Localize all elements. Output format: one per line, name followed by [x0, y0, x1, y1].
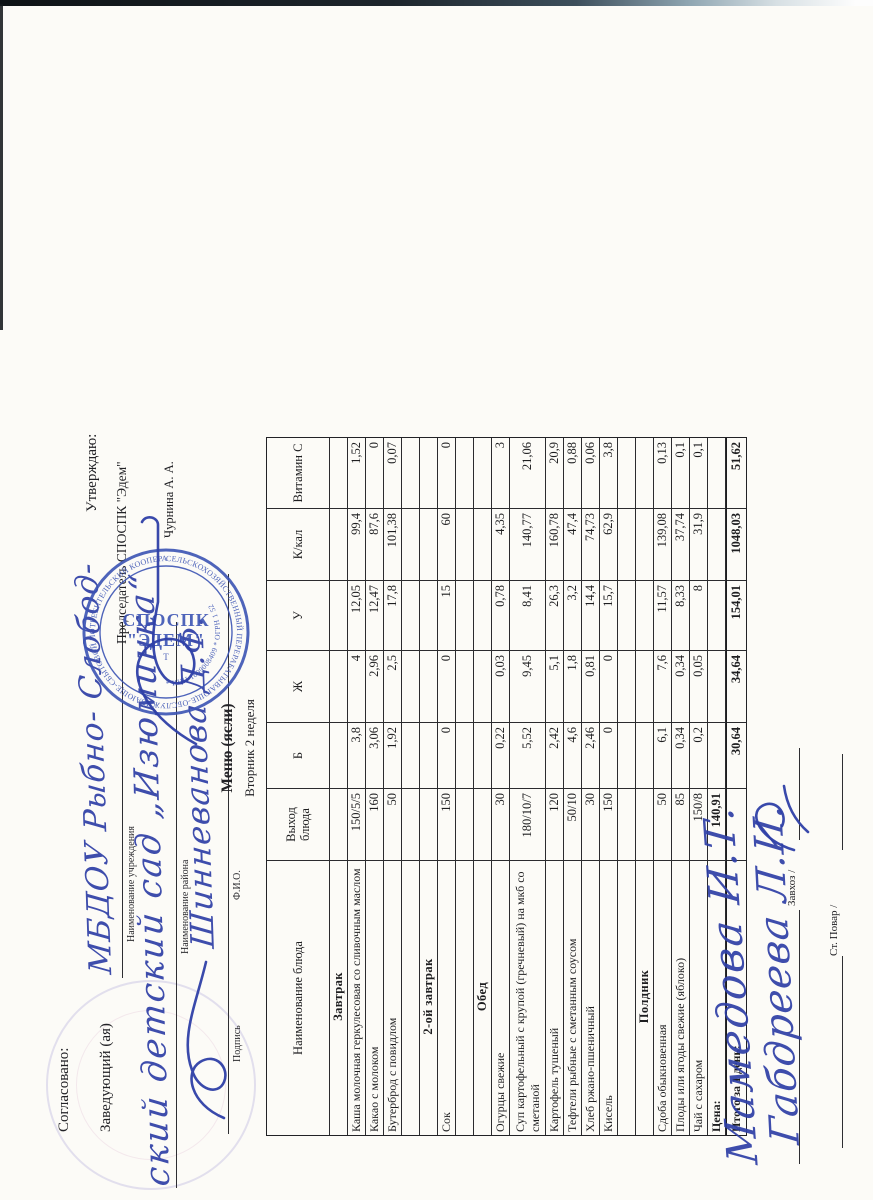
value-cell: 0: [438, 438, 455, 508]
value-cell: [330, 650, 347, 722]
table-row: Полдник: [636, 438, 654, 1135]
value-cell: [474, 650, 491, 722]
value-cell: 8: [690, 580, 707, 650]
value-cell: 0,2: [690, 722, 707, 788]
value-cell: 1,8: [564, 650, 581, 722]
menu-title: Меню (ясли): [219, 648, 237, 848]
head-role-label: Заведующий (ая): [98, 1023, 115, 1132]
header-dish-name: Наименование блюда: [267, 860, 329, 1135]
value-cell: 0: [438, 722, 455, 788]
approved-title: Утверждаю:: [84, 434, 101, 512]
value-cell: 150: [438, 788, 455, 860]
value-cell: 34,64: [727, 650, 746, 722]
dish-name-cell: Тефтели рыбные с сметанным соусом: [564, 860, 581, 1135]
value-cell: 150/5/5: [348, 788, 365, 860]
value-cell: [456, 508, 473, 580]
value-cell: 0: [600, 650, 617, 722]
value-cell: 5,1: [546, 650, 563, 722]
table-row: Какао с молоком1603,062,9612,4787,60: [366, 438, 384, 1135]
value-cell: [402, 438, 419, 508]
value-cell: 20,9: [546, 438, 563, 508]
dish-name-cell: 2-ой завтрак: [420, 860, 437, 1135]
value-cell: 17,8: [384, 580, 401, 650]
dish-name-cell: Обед: [474, 860, 491, 1135]
dish-name-cell: [456, 860, 473, 1135]
value-cell: [474, 508, 491, 580]
value-cell: 11,57: [654, 580, 671, 650]
footer-signature-scribble: [742, 772, 812, 862]
value-cell: [708, 722, 725, 788]
value-cell: 62,9: [600, 508, 617, 580]
cook-label: Ст. Повар /: [828, 905, 840, 956]
value-cell: 51,62: [727, 438, 746, 508]
value-cell: 0,34: [672, 650, 689, 722]
dish-name-cell: Плоды или ягоды свежие (яблоко): [672, 860, 689, 1135]
value-cell: [330, 580, 347, 650]
value-cell: 3: [492, 438, 509, 508]
value-cell: 85: [672, 788, 689, 860]
dish-name-cell: Картофель тушеный: [546, 860, 563, 1135]
value-cell: 2,46: [582, 722, 599, 788]
table-row: Плоды или ягоды свежие (яблоко)850,340,3…: [672, 438, 690, 1135]
value-cell: 2,5: [384, 650, 401, 722]
value-cell: [474, 788, 491, 860]
value-cell: [420, 650, 437, 722]
landscape-sheet: Согласовано: Заведующий (ая) МБДОУ Рыбно…: [0, 0, 873, 1200]
header-protein: Б: [267, 722, 329, 788]
value-cell: 0,34: [672, 722, 689, 788]
dish-name-cell: Завтрак: [330, 860, 347, 1135]
value-cell: [456, 722, 473, 788]
value-cell: [636, 508, 653, 580]
scan-edge-artifact-top: [0, 0, 873, 6]
header-carbs: У: [267, 580, 329, 650]
table-row: Тефтели рыбные с сметанным соусом50/104,…: [564, 438, 582, 1135]
fio-label: Ф.И.О.: [232, 870, 243, 900]
value-cell: 140,77: [510, 508, 545, 580]
value-cell: [420, 438, 437, 508]
value-cell: 2,96: [366, 650, 383, 722]
value-cell: 150: [600, 788, 617, 860]
value-cell: 12,47: [366, 580, 383, 650]
value-cell: 2,42: [546, 722, 563, 788]
value-cell: [330, 438, 347, 508]
value-cell: 1048,03: [727, 508, 746, 580]
value-cell: 50/10: [564, 788, 581, 860]
value-cell: 0: [600, 722, 617, 788]
value-cell: [708, 508, 725, 580]
menu-subtitle: Вторник 2 неделя: [242, 648, 258, 848]
value-cell: [636, 438, 653, 508]
agreed-title: Согласовано:: [56, 1048, 73, 1132]
scan-edge-artifact-left: [0, 4, 3, 330]
value-cell: 3,8: [600, 438, 617, 508]
table-row: Сок1500015600: [438, 438, 456, 1135]
table-row: [618, 438, 636, 1135]
dish-name-cell: Полдник: [636, 860, 653, 1135]
table-row: [402, 438, 420, 1135]
value-cell: 1,92: [384, 722, 401, 788]
table-row: Завтрак: [330, 438, 348, 1135]
value-cell: 87,6: [366, 508, 383, 580]
value-cell: 7,6: [654, 650, 671, 722]
value-cell: 99,4: [348, 508, 365, 580]
scanned-menu-page: Согласовано: Заведующий (ая) МБДОУ Рыбно…: [0, 0, 873, 1200]
value-cell: [618, 788, 635, 860]
value-cell: [402, 650, 419, 722]
value-cell: 0,78: [492, 580, 509, 650]
value-cell: 101,38: [384, 508, 401, 580]
table-row: Огурцы свежие300,220,030,784,353: [492, 438, 510, 1135]
value-cell: [420, 508, 437, 580]
value-cell: [636, 650, 653, 722]
value-cell: 15: [438, 580, 455, 650]
value-cell: 74,73: [582, 508, 599, 580]
value-cell: 160,78: [546, 508, 563, 580]
value-cell: [456, 438, 473, 508]
value-cell: [330, 722, 347, 788]
menu-table: Наименование блюда Выход блюда Б Ж У К/к…: [266, 437, 747, 1136]
dish-name-cell: Сок: [438, 860, 455, 1135]
value-cell: 14,4: [582, 580, 599, 650]
table-row: Кисель1500015,762,93,8: [600, 438, 618, 1135]
value-cell: [402, 788, 419, 860]
value-cell: 0,06: [582, 438, 599, 508]
table-row: Сдоба обыкновенная506,17,611,57139,080,1…: [654, 438, 672, 1135]
value-cell: 30: [582, 788, 599, 860]
value-cell: [420, 788, 437, 860]
value-cell: [618, 722, 635, 788]
table-row: 2-ой завтрак: [420, 438, 438, 1135]
header-kcal: К/кал: [267, 508, 329, 580]
dish-name-cell: Хлеб ржано-пшеничный: [582, 860, 599, 1135]
value-cell: 30: [492, 788, 509, 860]
value-cell: 4,6: [564, 722, 581, 788]
value-cell: [708, 580, 725, 650]
value-cell: 0: [366, 438, 383, 508]
value-cell: [402, 508, 419, 580]
value-cell: 0,05: [690, 650, 707, 722]
table-row: Суп картофельный с крупой (гречневый) на…: [510, 438, 546, 1135]
menu-table-body: ЗавтракКаша молочная геркулесовая со сли…: [330, 438, 746, 1135]
dish-name-cell: Бутерброд с повидлом: [384, 860, 401, 1135]
value-cell: [708, 650, 725, 722]
value-cell: [618, 438, 635, 508]
value-cell: 180/10/7: [510, 788, 545, 860]
table-row: Картофель тушеный1202,425,126,3160,7820,…: [546, 438, 564, 1135]
header-vitamin-c: Витамин С: [267, 438, 329, 508]
value-cell: 3,2: [564, 580, 581, 650]
header-fat: Ж: [267, 650, 329, 722]
value-cell: 9,45: [510, 650, 545, 722]
table-row: Чай с сахаром150/80,20,05831,90,1: [690, 438, 708, 1135]
value-cell: 1,52: [348, 438, 365, 508]
value-cell: 12,05: [348, 580, 365, 650]
value-cell: 50: [384, 788, 401, 860]
value-cell: 139,08: [654, 508, 671, 580]
value-cell: [456, 650, 473, 722]
value-cell: 50: [654, 788, 671, 860]
dish-name-cell: Кисель: [600, 860, 617, 1135]
value-cell: 0,88: [564, 438, 581, 508]
value-cell: [474, 722, 491, 788]
table-row: [456, 438, 474, 1135]
value-cell: [708, 438, 725, 508]
value-cell: [402, 722, 419, 788]
chairman-signature-scribble: [112, 510, 212, 750]
value-cell: [474, 438, 491, 508]
value-cell: 26,3: [546, 580, 563, 650]
value-cell: 8,33: [672, 580, 689, 650]
value-cell: 4: [348, 650, 365, 722]
dish-name-cell: [618, 860, 635, 1135]
value-cell: [636, 580, 653, 650]
dish-name-cell: Какао с молоком: [366, 860, 383, 1135]
value-cell: [420, 722, 437, 788]
value-cell: [330, 788, 347, 860]
value-cell: 47,4: [564, 508, 581, 580]
value-cell: [330, 508, 347, 580]
value-cell: 0,22: [492, 722, 509, 788]
table-row: Бутерброд с повидлом501,922,517,8101,380…: [384, 438, 402, 1135]
table-row: Хлеб ржано-пшеничный302,460,8114,474,730…: [582, 438, 600, 1135]
signature-label: Подпись: [232, 1025, 243, 1062]
value-cell: 0,1: [690, 438, 707, 508]
value-cell: 5,52: [510, 722, 545, 788]
value-cell: [402, 580, 419, 650]
value-cell: 154,01: [727, 580, 746, 650]
value-cell: [420, 580, 437, 650]
value-cell: 120: [546, 788, 563, 860]
cook-underline: [842, 956, 843, 1148]
value-cell: [474, 580, 491, 650]
value-cell: [456, 788, 473, 860]
value-cell: [636, 788, 653, 860]
value-cell: 4,35: [492, 508, 509, 580]
value-cell: [618, 508, 635, 580]
value-cell: [456, 580, 473, 650]
dish-name-cell: Сдоба обыкновенная: [654, 860, 671, 1135]
value-cell: 3,06: [366, 722, 383, 788]
value-cell: 0,03: [492, 650, 509, 722]
value-cell: [618, 650, 635, 722]
value-cell: 37,74: [672, 508, 689, 580]
header-portion: Выход блюда: [267, 788, 329, 860]
value-cell: 8,41: [510, 580, 545, 650]
dish-name-cell: Огурцы свежие: [492, 860, 509, 1135]
value-cell: [618, 580, 635, 650]
table-row: Каша молочная геркулесовая со сливочным …: [348, 438, 366, 1135]
value-cell: 31,9: [690, 508, 707, 580]
dish-name-cell: Каша молочная геркулесовая со сливочным …: [348, 860, 365, 1135]
value-cell: 6,1: [654, 722, 671, 788]
value-cell: 3,8: [348, 722, 365, 788]
value-cell: 160: [366, 788, 383, 860]
value-cell: 0,1: [672, 438, 689, 508]
menu-table-header: Наименование блюда Выход блюда Б Ж У К/к…: [267, 438, 330, 1135]
value-cell: 0,07: [384, 438, 401, 508]
dish-name-cell: [402, 860, 419, 1135]
value-cell: 60: [438, 508, 455, 580]
value-cell: 0,13: [654, 438, 671, 508]
value-cell: [636, 722, 653, 788]
table-row: Обед: [474, 438, 492, 1135]
value-cell: 0: [438, 650, 455, 722]
dish-name-cell: Суп картофельный с крупой (гречневый) на…: [510, 860, 545, 1135]
value-cell: 21,06: [510, 438, 545, 508]
value-cell: 0,81: [582, 650, 599, 722]
cook-sign-line: [842, 754, 843, 850]
value-cell: 15,7: [600, 580, 617, 650]
